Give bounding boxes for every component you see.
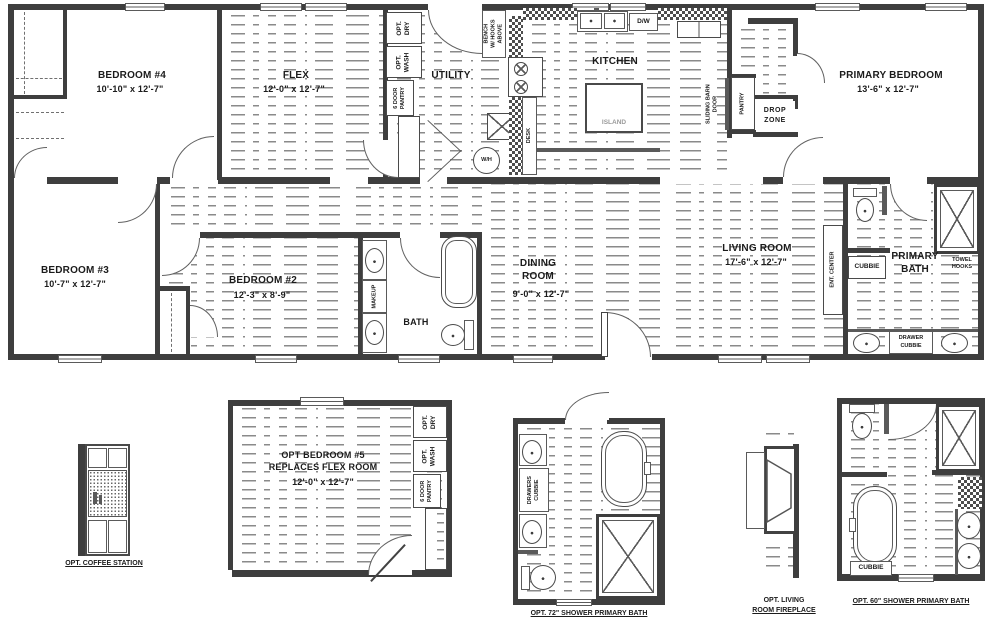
- bedroom3-label: BEDROOM #3: [41, 264, 109, 277]
- wall: [63, 8, 67, 98]
- coffee-station-label: OPT. COFFEE STATION: [65, 559, 143, 568]
- counter: [958, 477, 982, 509]
- drawers-cubbie: DRAWERSCUBBIE: [519, 468, 549, 512]
- wall: [882, 186, 887, 215]
- fireplace-label-line2: ROOM FIREPLACE: [752, 606, 815, 615]
- towel-hooks-label: TOWELHOOKS: [952, 257, 972, 271]
- door-swing-arc: [14, 147, 47, 178]
- bedroom2-closet: [160, 291, 186, 354]
- wall: [218, 177, 330, 184]
- shower-60: [936, 404, 982, 472]
- kitchen-counter: [523, 8, 577, 20]
- bedroom5-dims: 12'-0" x 12'-7": [292, 477, 354, 489]
- wall: [753, 132, 798, 137]
- window: [556, 599, 592, 606]
- wall: [14, 95, 67, 99]
- closet-shelf-line: [16, 112, 64, 113]
- primary-bedroom-dims: 13'-6" x 12'-7": [857, 84, 919, 96]
- pantry-cabinet: PANTRY: [731, 77, 755, 130]
- kitchen-label: KITCHEN: [592, 55, 638, 68]
- refrigerator: [677, 21, 721, 38]
- floor-plan-sheet: OPT.DRY OPT.WASH 6 DOORPANTRY W/H BENCHW…: [0, 0, 992, 626]
- toilet: [441, 324, 465, 346]
- wall: [513, 418, 518, 605]
- wall: [793, 18, 798, 56]
- bedroom5-label-line2: REPLACES FLEX ROOM: [269, 462, 378, 474]
- bedroom4-label: BEDROOM #4: [98, 69, 166, 82]
- pantry-6door-box: 6 DOORPANTRY: [413, 474, 441, 508]
- wall: [753, 95, 798, 99]
- sliding-barn-door-label: SLIDING BARNDOOR: [703, 77, 723, 131]
- floor-hatch: [757, 540, 797, 574]
- burner-icon: [514, 80, 528, 94]
- toilet: [852, 413, 872, 439]
- closet-cabinet: [425, 508, 447, 570]
- wall: [927, 177, 984, 184]
- wall: [228, 400, 233, 570]
- wall: [157, 177, 170, 184]
- island: ISLAND: [585, 83, 643, 133]
- hall-floor: [162, 184, 483, 232]
- window: [398, 355, 440, 363]
- wall: [932, 470, 982, 475]
- wall: [477, 232, 482, 354]
- shower-72: [596, 514, 660, 599]
- wall: [518, 550, 538, 554]
- fireplace-label-line1: OPT. LIVING: [764, 596, 805, 605]
- wall: [447, 177, 660, 184]
- wall: [842, 472, 887, 477]
- wall: [360, 232, 400, 238]
- bedroom2-dims: 12'-3" x 8'-9": [234, 290, 291, 302]
- shower: [934, 184, 980, 254]
- window: [815, 3, 860, 11]
- desk-counter: [509, 97, 522, 175]
- window: [305, 3, 347, 11]
- front-door-leaf: [601, 312, 608, 357]
- entertainment-center: ENT. CENTER: [823, 225, 843, 315]
- utility-label: UTILITY: [431, 69, 470, 82]
- cabinet-door: [108, 520, 127, 553]
- door-swing-arc: [118, 184, 157, 223]
- water-heater: W/H: [473, 147, 500, 174]
- door-swing-arc: [172, 136, 214, 178]
- sink: [365, 248, 384, 273]
- window: [718, 355, 762, 363]
- tub-faucet: [849, 518, 856, 532]
- coffee-bottle-icon: [99, 495, 102, 504]
- living-dims: 17'-6" x 12'-7": [725, 257, 787, 269]
- entry-bench: BENCHW/ HOOKSABOVE: [482, 10, 506, 58]
- wall: [823, 177, 890, 184]
- closet-shelf-line: [16, 138, 64, 139]
- cabinet-door: [88, 448, 107, 468]
- wall: [217, 8, 222, 180]
- sink: [522, 440, 542, 464]
- door-swing-arc: [565, 392, 609, 420]
- shower60-label: OPT. 60" SHOWER PRIMARY BATH: [853, 597, 970, 606]
- floor-hatch: [757, 428, 795, 442]
- living-label: LIVING ROOM: [722, 242, 791, 255]
- wall: [729, 130, 756, 134]
- toilet-tank: [853, 188, 877, 197]
- bedroom5-label-line1: OPT BEDROOM #5: [281, 450, 364, 462]
- fireplace-insert: [766, 459, 792, 523]
- freestanding-tub: [853, 486, 897, 566]
- sink: [365, 320, 384, 345]
- opt-washer-box: OPT.WASH: [386, 46, 422, 78]
- wall: [8, 354, 984, 360]
- bedroom3-dims: 10'-7" x 12'-7": [44, 279, 106, 291]
- dining-dims: 9'-0" x 12'-7": [513, 289, 570, 301]
- toilet: [856, 198, 874, 222]
- flex-label: FLEX: [283, 69, 309, 82]
- wall: [368, 177, 420, 184]
- closet-shelf-line: [16, 78, 62, 79]
- bath-label: BATH: [403, 317, 428, 329]
- opt-washer-box: OPT.WASH: [413, 440, 447, 472]
- door-swing-arc: [783, 137, 823, 177]
- sink: [941, 333, 968, 353]
- window: [925, 3, 967, 11]
- sink: [957, 543, 981, 569]
- primary-bath-label: PRIMARYBATH: [891, 250, 938, 276]
- wall: [763, 177, 783, 184]
- cabinet-door: [108, 448, 127, 468]
- window: [610, 3, 646, 11]
- sink: [957, 512, 981, 539]
- closet-shelf-line: [171, 293, 172, 352]
- wall: [47, 177, 118, 184]
- closet-shelf-line: [24, 12, 25, 94]
- sink: [853, 333, 880, 353]
- makeup-counter: MAKEUP: [362, 280, 387, 313]
- faucet-icon: [594, 8, 599, 12]
- wall: [447, 400, 452, 577]
- door-swing-arc: [400, 238, 440, 278]
- window: [572, 3, 609, 11]
- opt-dryer-box: OPT.DRY: [386, 12, 422, 44]
- bedroom2-label: BEDROOM #2: [229, 274, 297, 287]
- window: [58, 355, 102, 363]
- kitchen-bar-counter: [528, 148, 660, 152]
- burner-icon: [514, 62, 528, 76]
- wall: [232, 570, 452, 577]
- window: [766, 355, 810, 363]
- toilet-tank: [464, 320, 474, 350]
- window: [513, 355, 553, 363]
- utility-cabinet: [398, 116, 420, 178]
- door-swing-arc: [797, 53, 825, 83]
- wall: [748, 18, 797, 24]
- dishwasher: D/W: [629, 13, 658, 31]
- kitchen-counter: [658, 8, 727, 20]
- kitchen-counter: [509, 16, 523, 58]
- wall: [8, 4, 14, 360]
- window: [300, 397, 344, 406]
- freestanding-tub: [601, 431, 647, 507]
- wall: [660, 418, 665, 605]
- drop-zone: DROPZONE: [755, 101, 795, 130]
- window: [898, 574, 934, 582]
- tub-faucet: [644, 462, 651, 475]
- sink-basin: [604, 13, 625, 29]
- wall: [845, 248, 890, 253]
- window: [255, 355, 297, 363]
- opt-dryer-box: OPT.DRY: [413, 406, 447, 438]
- bathtub: [441, 236, 477, 308]
- toilet-tank: [521, 566, 530, 590]
- primary-bedroom-label: PRIMARY BEDROOM: [839, 69, 943, 82]
- coffee-bottle-icon: [93, 492, 97, 504]
- window: [260, 3, 302, 11]
- desk: DESK: [522, 97, 537, 175]
- wall: [837, 398, 842, 581]
- fireplace-surround: [746, 452, 765, 529]
- wall: [78, 444, 85, 556]
- drawer-cubbie: DRAWERCUBBIE: [889, 331, 933, 354]
- pantry-6door-box: 6 DOORPANTRY: [386, 80, 414, 116]
- cubbie: CUBBIE: [850, 561, 892, 576]
- cabinet-door: [88, 520, 107, 553]
- sliding-barn-door: [725, 78, 729, 130]
- wall: [200, 232, 360, 238]
- toilet: [530, 565, 556, 590]
- toilet-tank: [849, 404, 875, 413]
- shower72-label: OPT. 72" SHOWER PRIMARY BATH: [531, 609, 648, 618]
- flex-dims: 12'-0" x 12'-7": [263, 84, 325, 96]
- bedroom4-dims: 10'-10" x 12'-7": [96, 84, 163, 96]
- sink-basin: [580, 13, 602, 29]
- dining-label: DININGROOM: [520, 257, 556, 283]
- window: [125, 3, 165, 11]
- cubbie: CUBBIE: [848, 256, 886, 279]
- sink: [522, 520, 542, 544]
